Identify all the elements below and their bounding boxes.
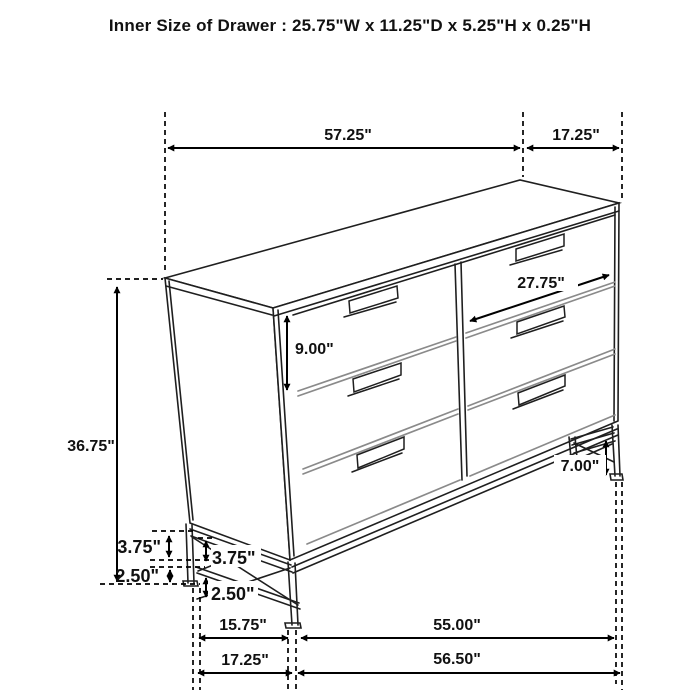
left-side-panel [165,278,290,560]
label-front-leg-spacing: 55.00" [433,617,481,634]
label-right-leg-height: 7.00" [561,458,600,475]
label-overall-height: 36.75" [67,438,115,455]
label-drawer-front-height: 9.00" [295,341,334,358]
leg-foot [610,474,623,480]
label-drawer-front-width: 27.75" [517,275,565,292]
diagram-canvas: Inner Size of Drawer : 25.75"W x 11.25"D… [0,0,700,700]
label-side-leg-spacing: 15.75" [219,617,267,634]
label-side-rail-gap-inner: 3.75" [212,548,256,568]
label-foot-height-outer: 2.50" [115,566,159,586]
label-base-width: 56.50" [433,651,481,668]
label-overall-width: 57.25" [324,127,372,144]
label-side-rail-gap-outer: 3.75" [117,537,161,557]
dresser-dimension-diagram: Inner Size of Drawer : 25.75"W x 11.25"D… [0,0,700,700]
diagram-title: Inner Size of Drawer : 25.75"W x 11.25"D… [109,16,591,35]
label-base-depth: 17.25" [221,652,269,669]
label-foot-height-inner: 2.50" [211,584,255,604]
label-overall-depth: 17.25" [552,127,600,144]
